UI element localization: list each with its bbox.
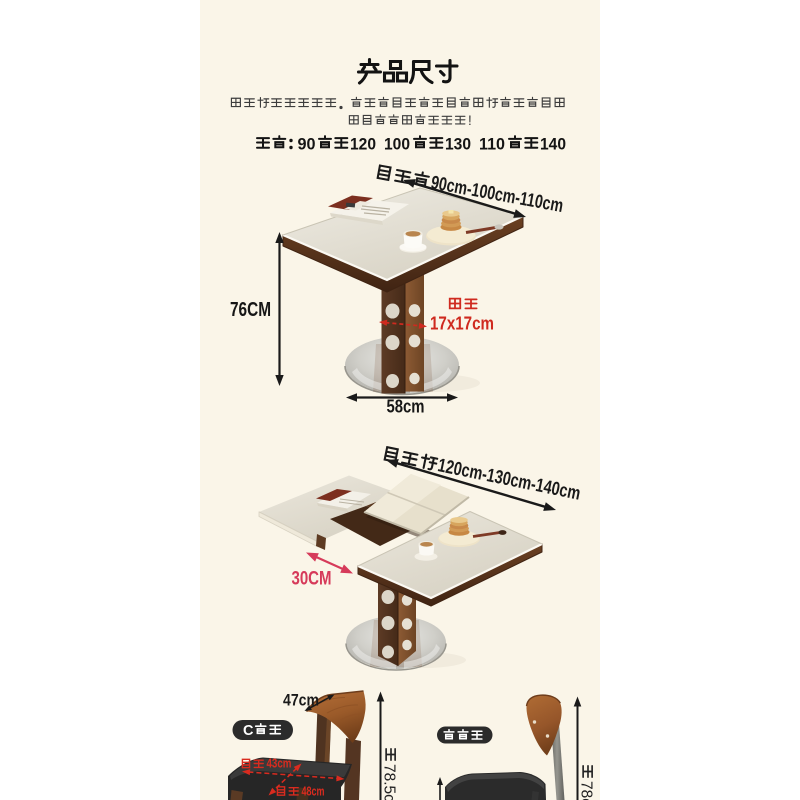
svg-text:90: 90	[298, 135, 316, 154]
svg-text:78cm: 78cm	[578, 781, 595, 800]
svg-text:76CM: 76CM	[230, 299, 271, 321]
svg-text:58cm: 58cm	[387, 397, 425, 417]
svg-text:130: 130	[445, 135, 471, 154]
svg-text:100: 100	[384, 135, 410, 154]
svg-text:!: !	[468, 113, 472, 128]
svg-text:48cm: 48cm	[302, 785, 325, 799]
svg-text:120: 120	[350, 135, 376, 154]
svg-text:78.5cm: 78.5cm	[381, 764, 398, 800]
svg-text:17x17cm: 17x17cm	[430, 313, 494, 334]
svg-text:30CM: 30CM	[292, 569, 332, 590]
svg-text:43cm: 43cm	[267, 757, 292, 771]
svg-text:C: C	[243, 723, 254, 739]
svg-text:140: 140	[540, 135, 566, 154]
svg-text:110: 110	[479, 135, 505, 154]
